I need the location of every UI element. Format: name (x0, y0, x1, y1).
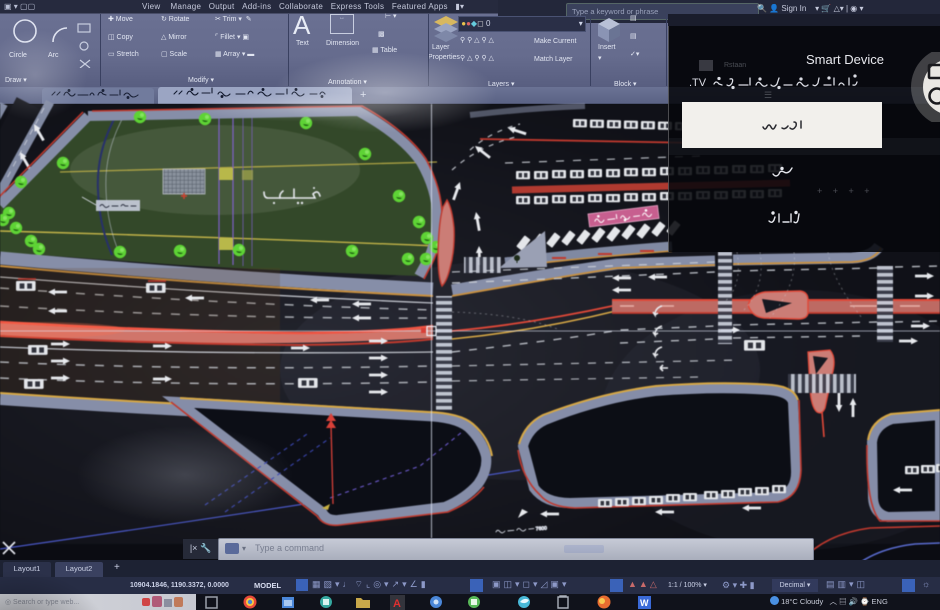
svg-text:.TV: .TV (689, 77, 707, 89)
svg-text:A: A (393, 598, 401, 610)
svg-text:W: W (640, 598, 649, 608)
svg-text:7600: 7600 (536, 525, 548, 532)
